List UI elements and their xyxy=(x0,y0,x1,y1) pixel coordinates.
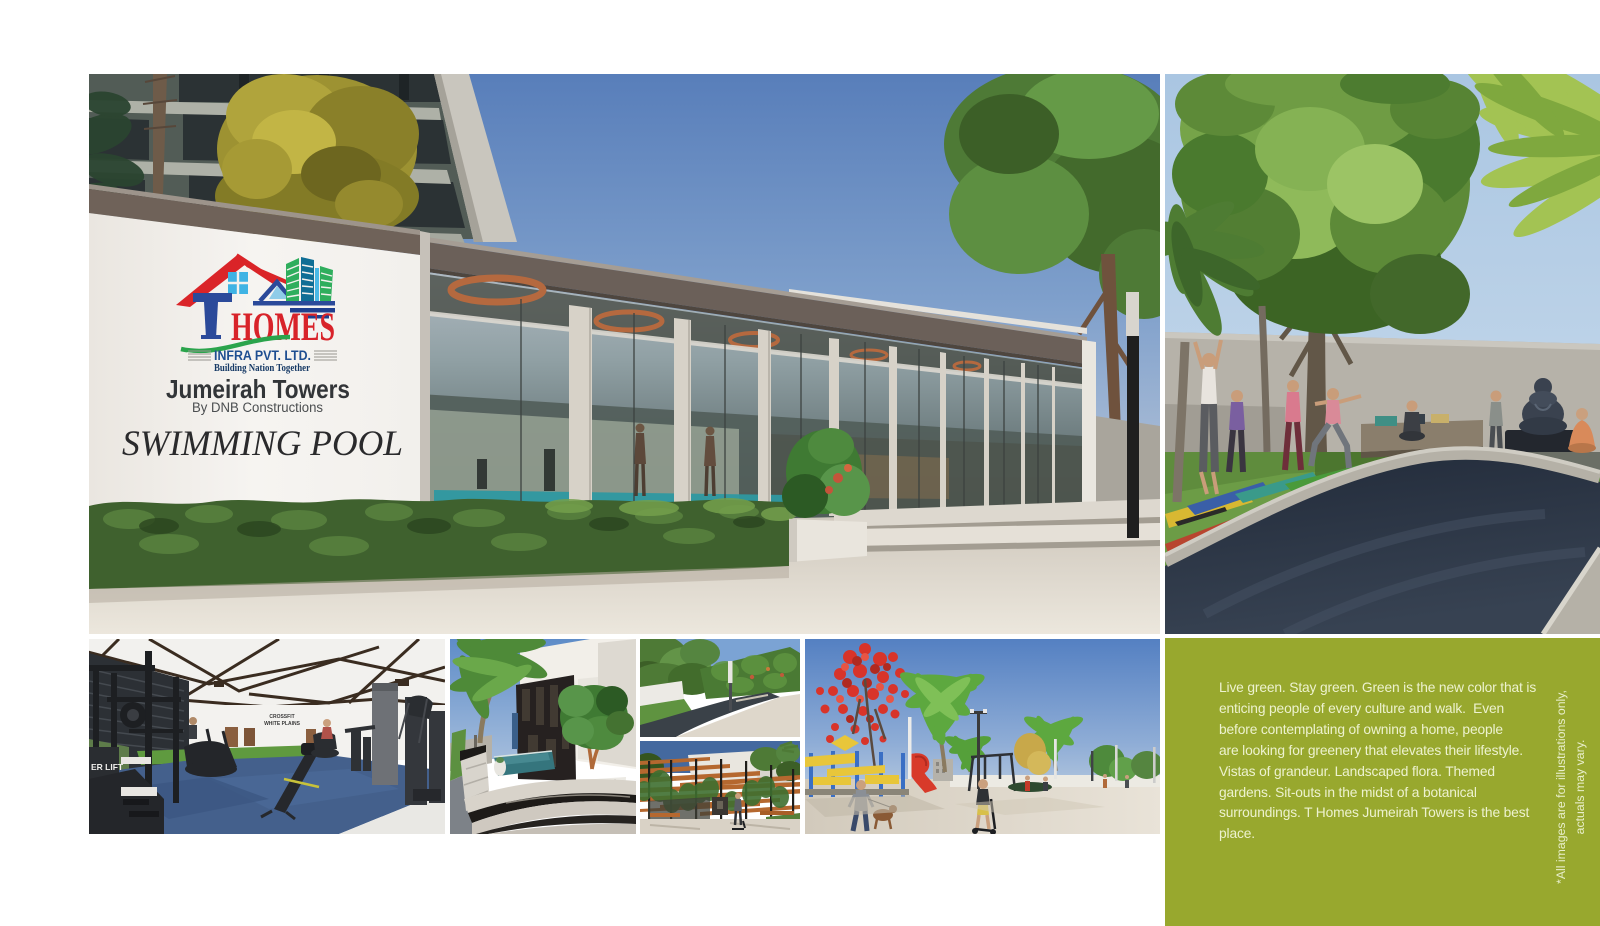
svg-text:INFRA PVT. LTD.: INFRA PVT. LTD. xyxy=(214,348,311,363)
svg-text:CROSSFIT: CROSSFIT xyxy=(269,714,294,720)
svg-text:Building Nation Together: Building Nation Together xyxy=(214,363,310,374)
svg-text:ER LIFT: ER LIFT xyxy=(91,762,124,772)
svg-text:SWIMMING POOL: SWIMMING POOL xyxy=(122,423,403,463)
svg-text:By DNB Constructions: By DNB Constructions xyxy=(192,400,323,415)
svg-text:WHITE PLAINS: WHITE PLAINS xyxy=(264,721,300,727)
